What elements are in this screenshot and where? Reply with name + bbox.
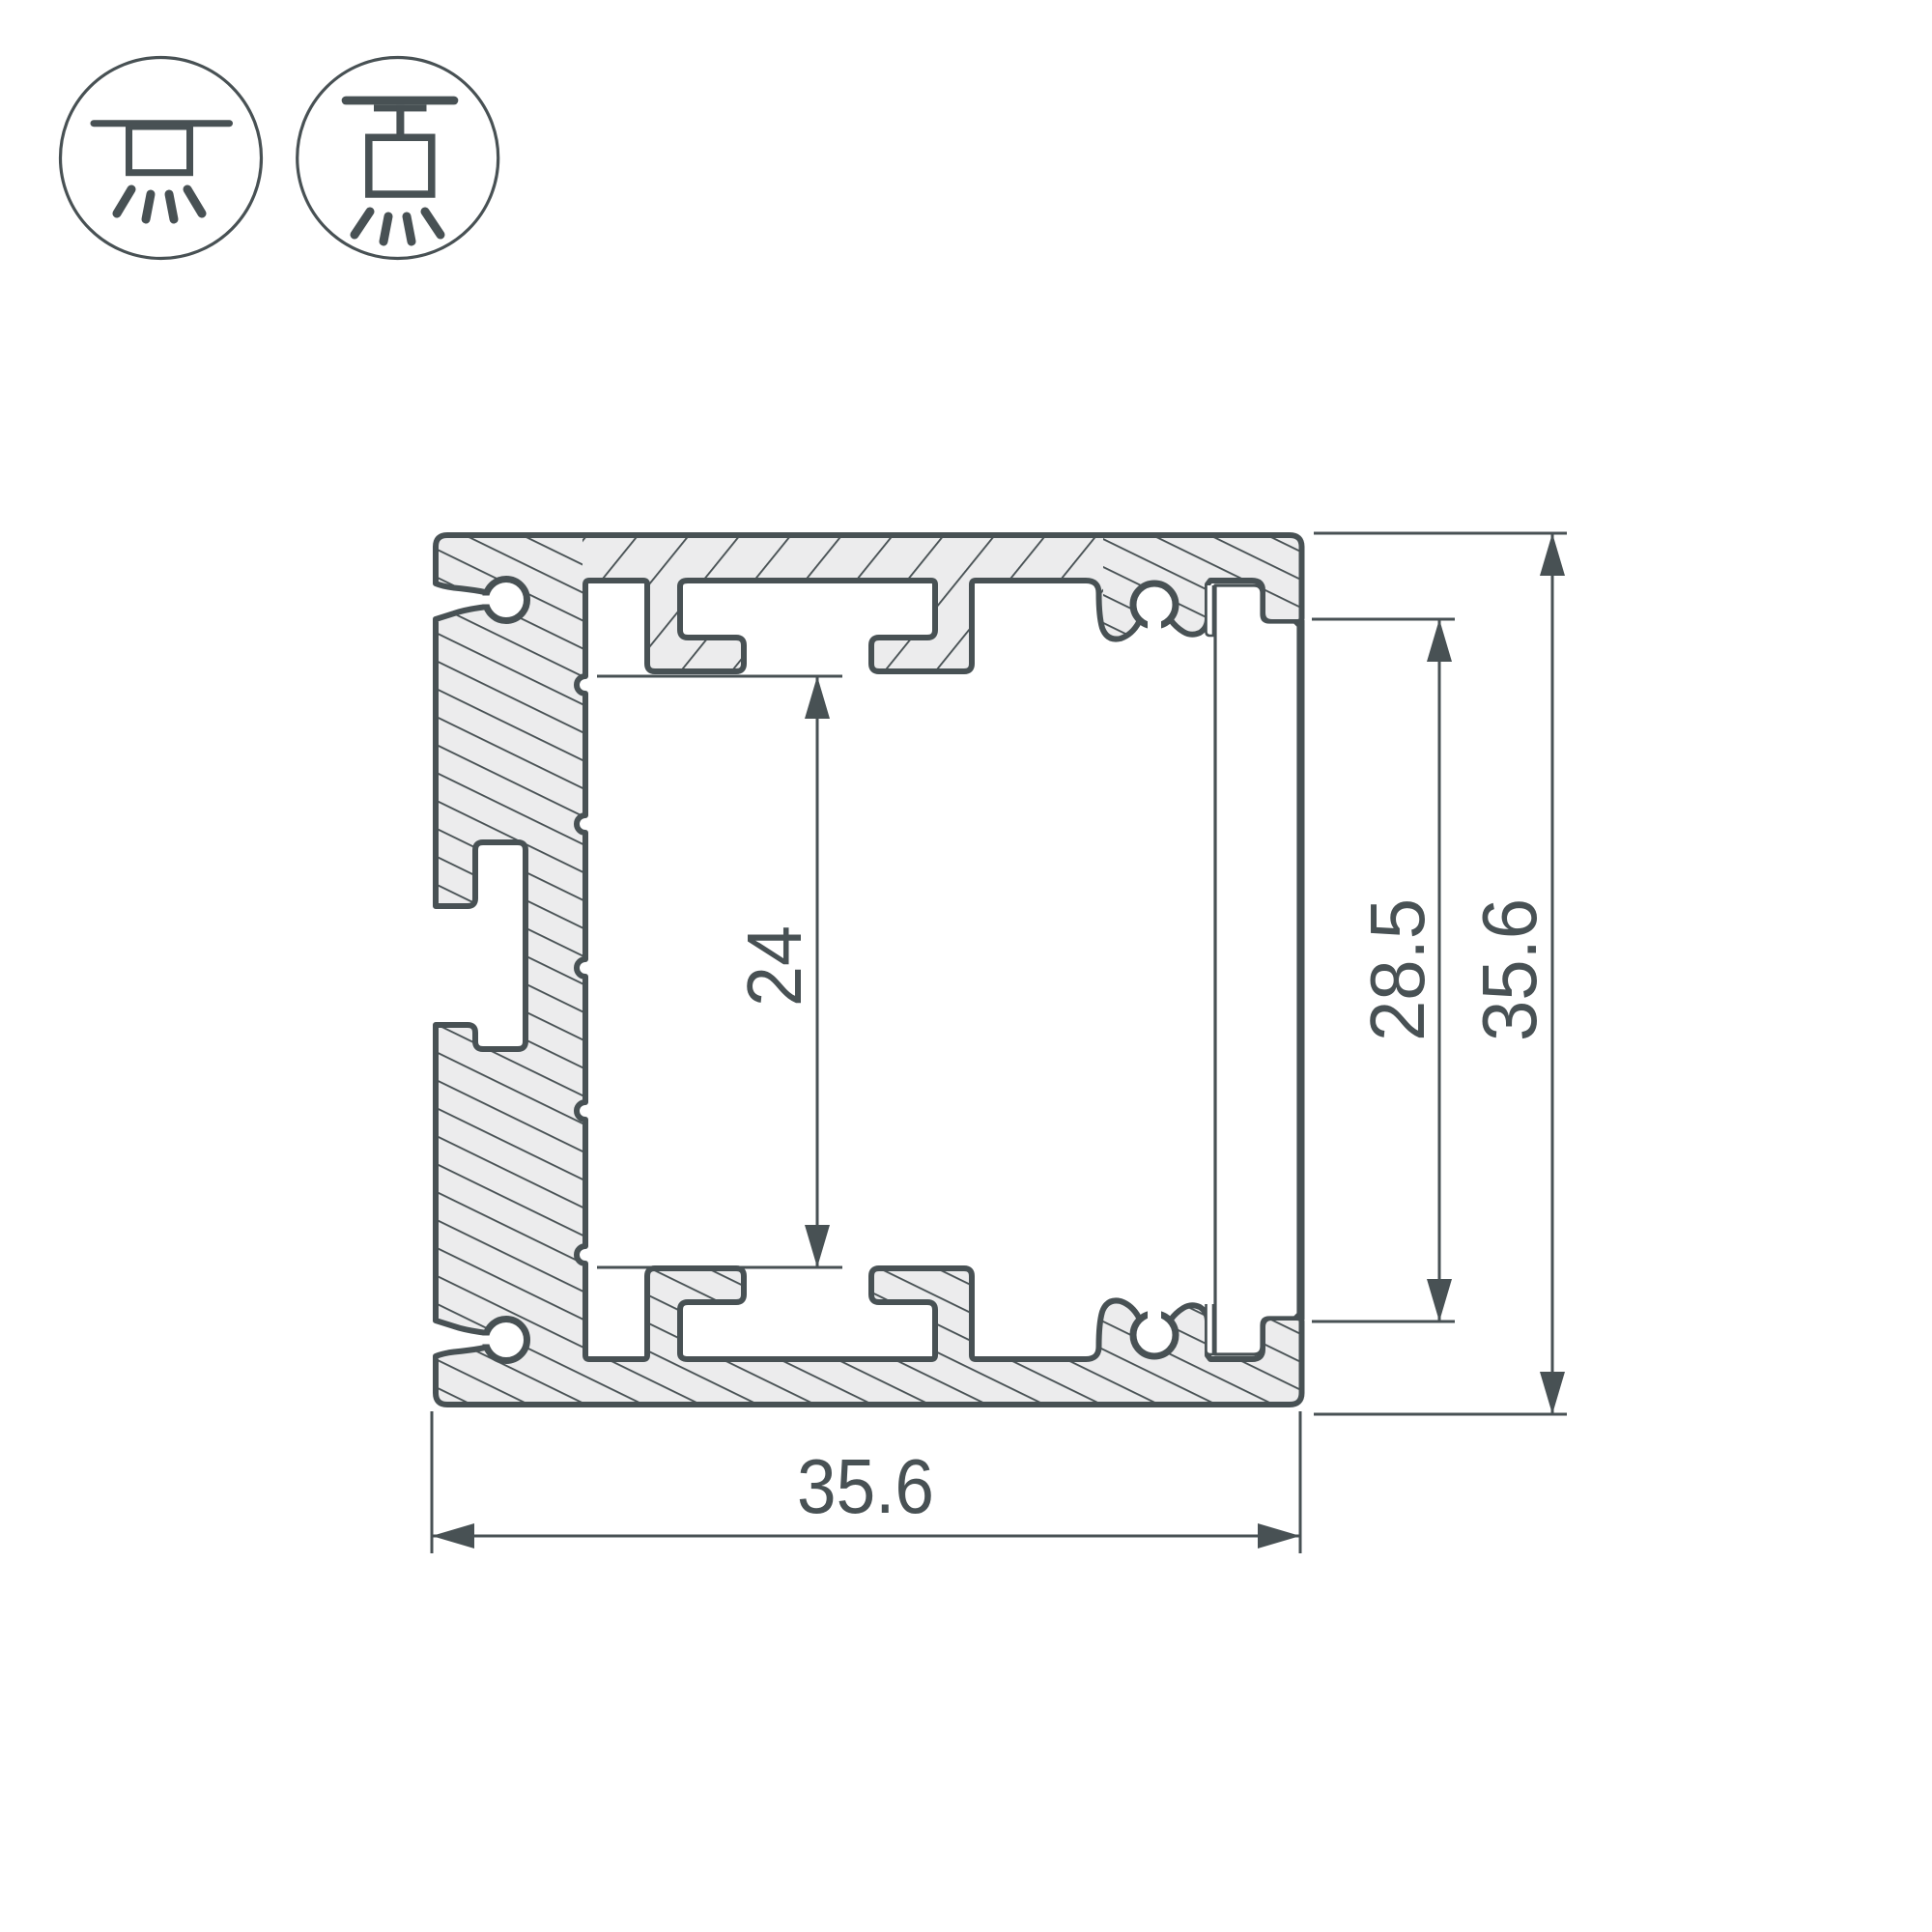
svg-text:24: 24: [731, 925, 817, 1007]
svg-text:35.6: 35.6: [797, 1443, 934, 1529]
svg-text:35.6: 35.6: [1466, 898, 1552, 1041]
svg-text:28.5: 28.5: [1354, 898, 1440, 1041]
